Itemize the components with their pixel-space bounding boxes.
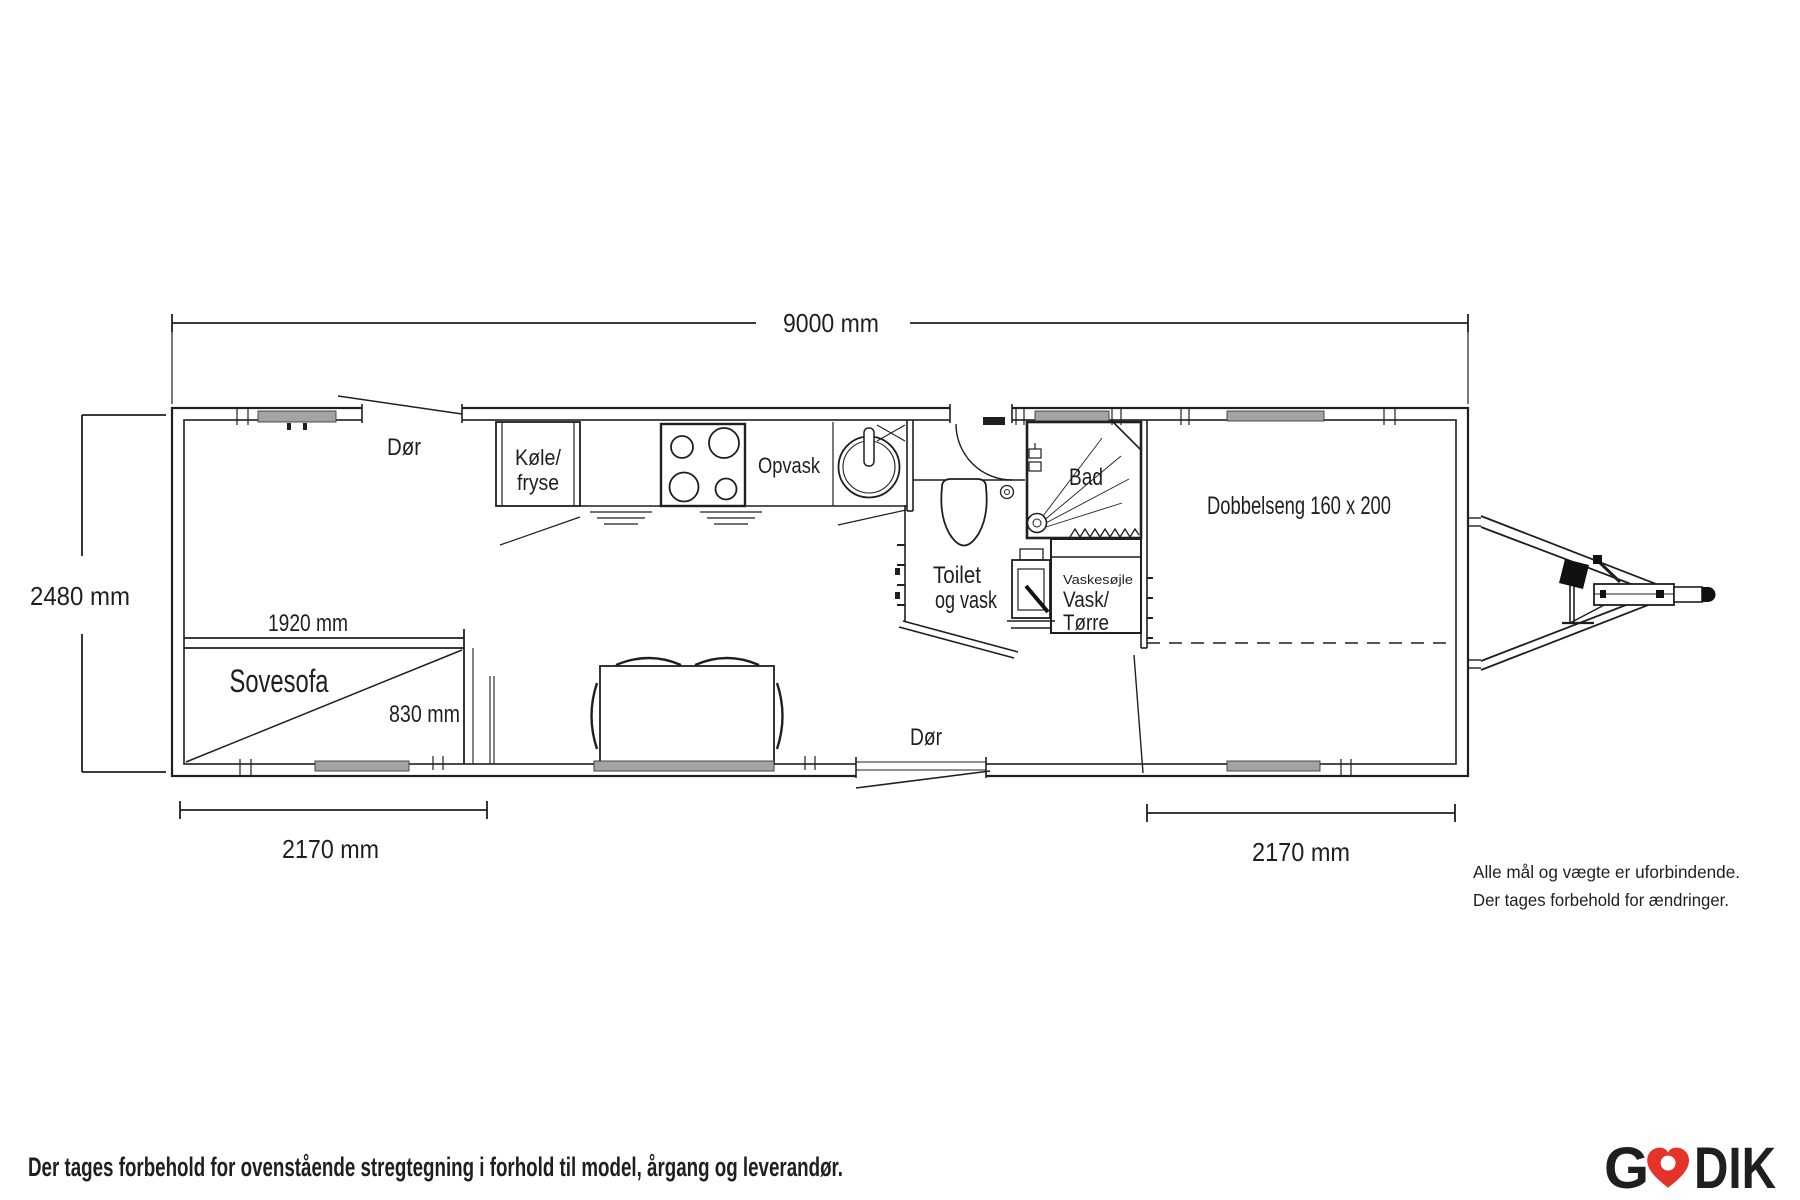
- toilet-label-1: Toilet: [933, 562, 981, 589]
- shower-fixture: [1029, 449, 1041, 458]
- toilet-roll-icon: [1001, 486, 1014, 499]
- washer-label-2: Tørre: [1063, 610, 1109, 635]
- washer-small-label: Vaskesøjle: [1063, 573, 1133, 587]
- bed-label: Dobbelseng 160 x 200: [1207, 492, 1391, 520]
- sofa-label: Sovesofa: [230, 663, 329, 699]
- floorplan-canvas: 9000 mm 2480 mm 2170 mm 2170 mm 1920 mm …: [0, 0, 1800, 1200]
- dim-sofa-depth: 830 mm: [389, 701, 460, 728]
- fridge-label-1: Køle/: [515, 445, 562, 470]
- angled-wall: [903, 621, 1018, 652]
- dim-sofa-length: 1920 mm: [268, 610, 348, 637]
- dim-total-length: 9000 mm: [783, 308, 879, 338]
- chair-arc: [592, 683, 598, 749]
- cabinet-hatching: [590, 512, 762, 524]
- window-under-table: [594, 761, 774, 771]
- logo-letter-g: G: [1604, 1136, 1649, 1200]
- heart-icon: [1647, 1148, 1689, 1188]
- note-line-1: Alle mål og vægte er uforbindende.: [1473, 862, 1740, 882]
- hitch-handle: [1598, 561, 1620, 582]
- toilet-icon: [941, 479, 986, 546]
- bedroom-door-leaf: [1134, 655, 1143, 773]
- godik-logo: G DIK: [1604, 1136, 1776, 1200]
- footer-disclaimer: Der tages forbehold for ovenstående stre…: [28, 1152, 843, 1182]
- toilet-room-door-swing: [838, 510, 906, 525]
- fridge-label-2: fryse: [517, 470, 559, 495]
- dining-table: [592, 658, 783, 763]
- faucet-icon: [864, 428, 874, 466]
- dim-right-section: 2170 mm: [1252, 837, 1350, 867]
- dimension-labels: 9000 mm 2480 mm 2170 mm 2170 mm 1920 mm …: [30, 308, 1350, 867]
- fridge-door-swing: [500, 517, 580, 545]
- coupling-clamp: [1559, 559, 1589, 589]
- hitch-ball-socket: [1702, 587, 1716, 602]
- top-door-label: Dør: [387, 434, 421, 461]
- chair-arc: [616, 658, 681, 665]
- shower-head-icon: [1028, 514, 1047, 533]
- small-appliance: [1007, 549, 1055, 628]
- toilet-door-threshold: [983, 417, 1005, 425]
- exterior-walls: [172, 408, 1468, 776]
- disclaimer-note: Alle mål og vægte er uforbindende. Der t…: [1473, 862, 1740, 910]
- partition-wall: [1134, 420, 1153, 773]
- kitchen-sink: [839, 425, 906, 498]
- floorplan-drawing: 9000 mm 2480 mm 2170 mm 2170 mm 1920 mm …: [0, 0, 1800, 1200]
- note-line-2: Der tages forbehold for ændringer.: [1473, 890, 1729, 910]
- dim-left-section: 2170 mm: [282, 834, 379, 864]
- toilet-label-2: og vask: [935, 587, 998, 614]
- bottom-door-label: Dør: [910, 724, 942, 751]
- bath-label: Bad: [1069, 464, 1103, 491]
- toilet-door-arc: [956, 424, 1012, 480]
- washer-label-1: Vask/: [1063, 587, 1110, 612]
- chair-arc: [777, 683, 783, 749]
- logo-letters-dik: DIK: [1694, 1136, 1776, 1200]
- trailer-hitch: [1468, 516, 1716, 670]
- dim-total-height: 2480 mm: [30, 581, 130, 611]
- shower-drain-zigzag: [1070, 529, 1139, 537]
- dimension-lines: [82, 314, 1468, 822]
- stove: [661, 424, 745, 506]
- chair-arc: [695, 658, 759, 665]
- dishes-label: Opvask: [758, 453, 821, 478]
- stove-burners: [670, 428, 740, 502]
